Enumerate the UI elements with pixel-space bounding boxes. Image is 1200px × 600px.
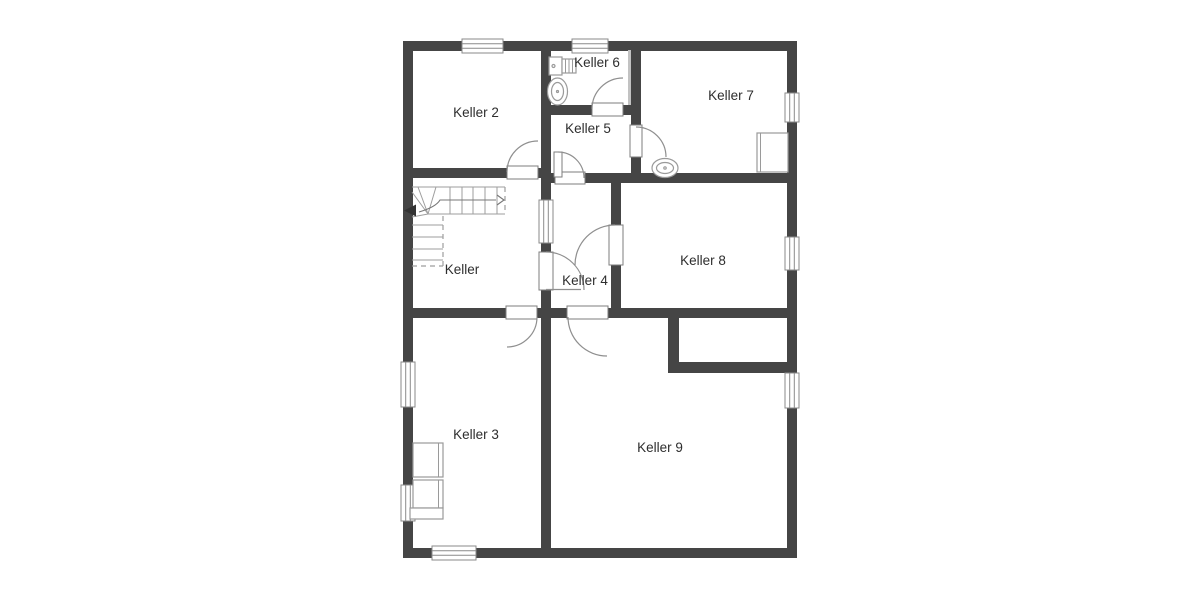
- wall-shading-detail: [628, 50, 631, 105]
- door-keller7: [630, 125, 666, 157]
- cabinet-keller7: [757, 133, 788, 172]
- room-label-keller-8: Keller 8: [680, 253, 726, 268]
- room-label-keller-3: Keller 3: [453, 427, 499, 442]
- room-label-keller-2: Keller 2: [453, 105, 499, 120]
- room-label-keller-4: Keller 4: [562, 273, 608, 288]
- inner-wall-vertical-main: [541, 41, 551, 548]
- window-keller6-top: [572, 39, 608, 53]
- window-keller7-right: [785, 93, 799, 122]
- inner-wall-keller6-keller5: [541, 105, 641, 115]
- outer-wall-left: [403, 41, 413, 558]
- room-label-keller-5: Keller 5: [565, 121, 611, 136]
- floor-plan-canvas: Keller 2 Keller 6 Keller 7 Keller 5 Kell…: [0, 0, 1200, 600]
- room-label-keller: Keller: [445, 262, 480, 277]
- door-keller4-keller8: [575, 225, 623, 265]
- window-keller9-right: [785, 373, 799, 408]
- window-keller3-bottom: [432, 546, 476, 560]
- door-keller2: [507, 141, 538, 179]
- room-label-keller-7: Keller 7: [708, 88, 754, 103]
- door-keller9: [567, 306, 608, 356]
- window-keller3-left-upper: [401, 362, 415, 407]
- room-label-keller-9: Keller 9: [637, 440, 683, 455]
- staircase: [404, 187, 505, 266]
- room-label-keller-6: Keller 6: [574, 55, 620, 70]
- door-keller5: [554, 152, 585, 184]
- door-keller6: [592, 78, 623, 116]
- window-hall-keller4: [539, 200, 553, 243]
- inner-wall-niche-bottom: [668, 362, 797, 373]
- window-keller2-top: [462, 39, 503, 53]
- door-keller3: [506, 306, 537, 347]
- sink-unit-keller6: [549, 57, 576, 75]
- window-keller8-right: [785, 237, 799, 270]
- shelf-base-keller3: [410, 508, 443, 519]
- stair-arrow-icon: [497, 195, 504, 205]
- floor-plan-page: Keller 2 Keller 6 Keller 7 Keller 5 Kell…: [0, 0, 1200, 600]
- shelf-unit-keller3-lower: [410, 480, 443, 519]
- toilet-keller7: [652, 159, 678, 178]
- toilet-keller6: [548, 78, 568, 105]
- shelf-unit-keller3-upper: [413, 443, 443, 477]
